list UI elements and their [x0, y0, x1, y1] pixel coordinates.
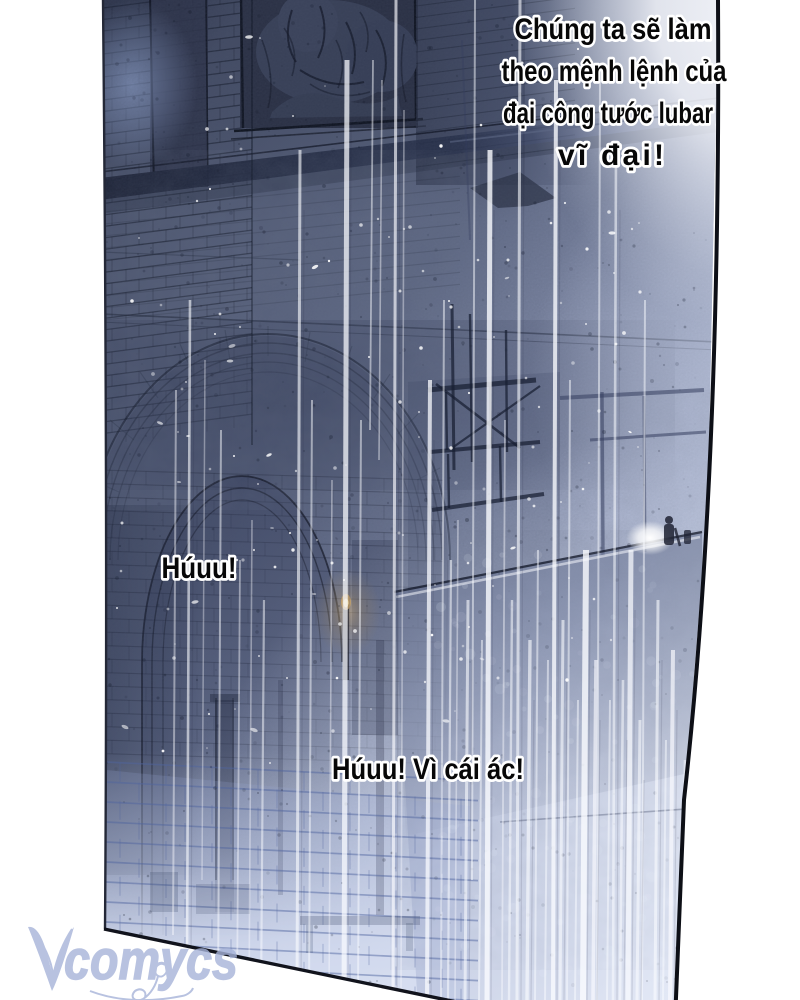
svg-text:Húuu! Vì cái ác!: Húuu! Vì cái ác! [332, 753, 524, 786]
svg-text:đại công tước lubar: đại công tước lubar [503, 97, 713, 130]
svg-text:Húuu!: Húuu! [162, 552, 237, 585]
svg-text:theo mệnh lệnh của: theo mệnh lệnh của [502, 55, 727, 88]
svg-text:Chúng ta sẽ làm: Chúng ta sẽ làm [515, 13, 712, 46]
svg-text:vĩ đại!: vĩ đại! [558, 139, 664, 172]
svg-text:comycs: comycs [64, 928, 238, 991]
